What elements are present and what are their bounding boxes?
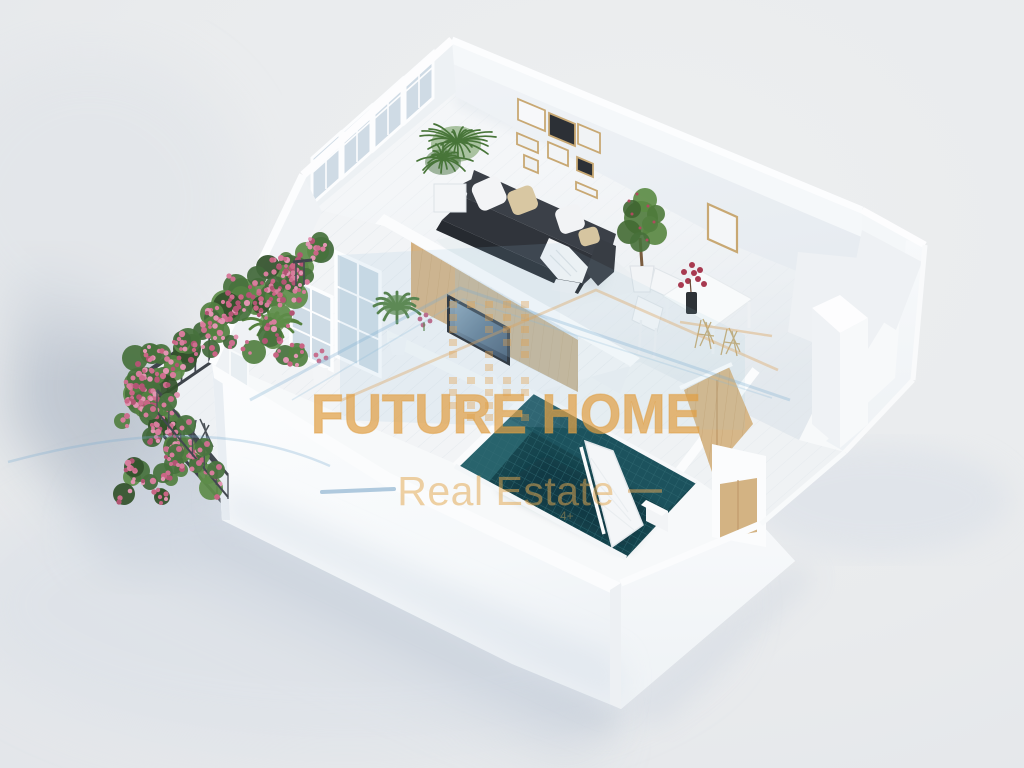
- svg-text:FUTURE HOME: FUTURE HOME: [311, 383, 701, 446]
- svg-text:Real Estate: Real Estate: [397, 468, 614, 514]
- svg-text:4+: 4+: [560, 509, 574, 523]
